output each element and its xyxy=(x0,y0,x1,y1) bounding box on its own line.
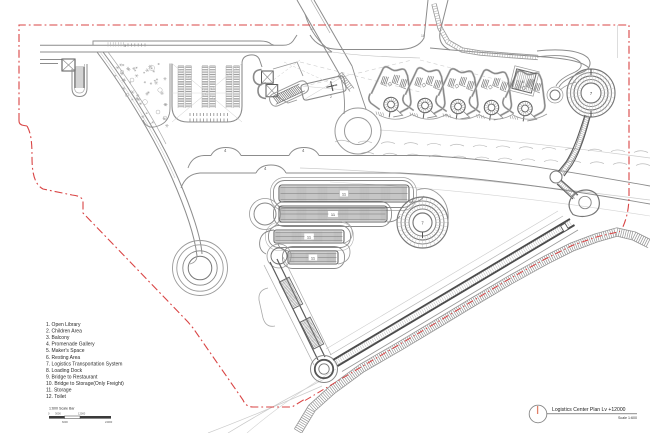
svg-text:6: 6 xyxy=(522,80,524,84)
svg-text:10. Bridge to Storage(Only Fre: 10. Bridge to Storage(Only Freight) xyxy=(46,381,124,387)
svg-text:1:600 Scale Bar: 1:600 Scale Bar xyxy=(49,407,75,411)
svg-text:6000: 6000 xyxy=(62,420,68,424)
svg-text:24000: 24000 xyxy=(105,420,113,424)
svg-text:6. Resting Area: 6. Resting Area xyxy=(46,355,80,361)
svg-text:11. Storage: 11. Storage xyxy=(46,388,72,394)
svg-text:3000: 3000 xyxy=(55,412,61,416)
svg-text:10: 10 xyxy=(421,34,425,38)
svg-text:2: 2 xyxy=(330,95,332,99)
svg-text:1. Open Library: 1. Open Library xyxy=(46,322,81,328)
svg-text:12000: 12000 xyxy=(78,412,86,416)
svg-text:8. Loading Dock: 8. Loading Dock xyxy=(46,368,83,374)
svg-text:7. Logistics Transportation Sy: 7. Logistics Transportation System xyxy=(46,361,122,367)
svg-text:9. Bridge to Restaurant: 9. Bridge to Restaurant xyxy=(46,374,98,380)
svg-text:3: 3 xyxy=(124,44,126,48)
svg-text:3. Balcony: 3. Balcony xyxy=(46,335,70,341)
svg-text:2. Children Area: 2. Children Area xyxy=(46,329,82,335)
svg-text:Scale 1:600: Scale 1:600 xyxy=(618,416,637,420)
svg-text:5. Maker's Space: 5. Maker's Space xyxy=(46,348,85,354)
svg-text:4. Promenade Gallery: 4. Promenade Gallery xyxy=(46,342,95,348)
svg-text:Logistics Center Plan Lv +1200: Logistics Center Plan Lv +12000 xyxy=(552,407,626,413)
svg-text:10: 10 xyxy=(310,27,314,31)
svg-text:12. Toilet: 12. Toilet xyxy=(46,394,67,400)
